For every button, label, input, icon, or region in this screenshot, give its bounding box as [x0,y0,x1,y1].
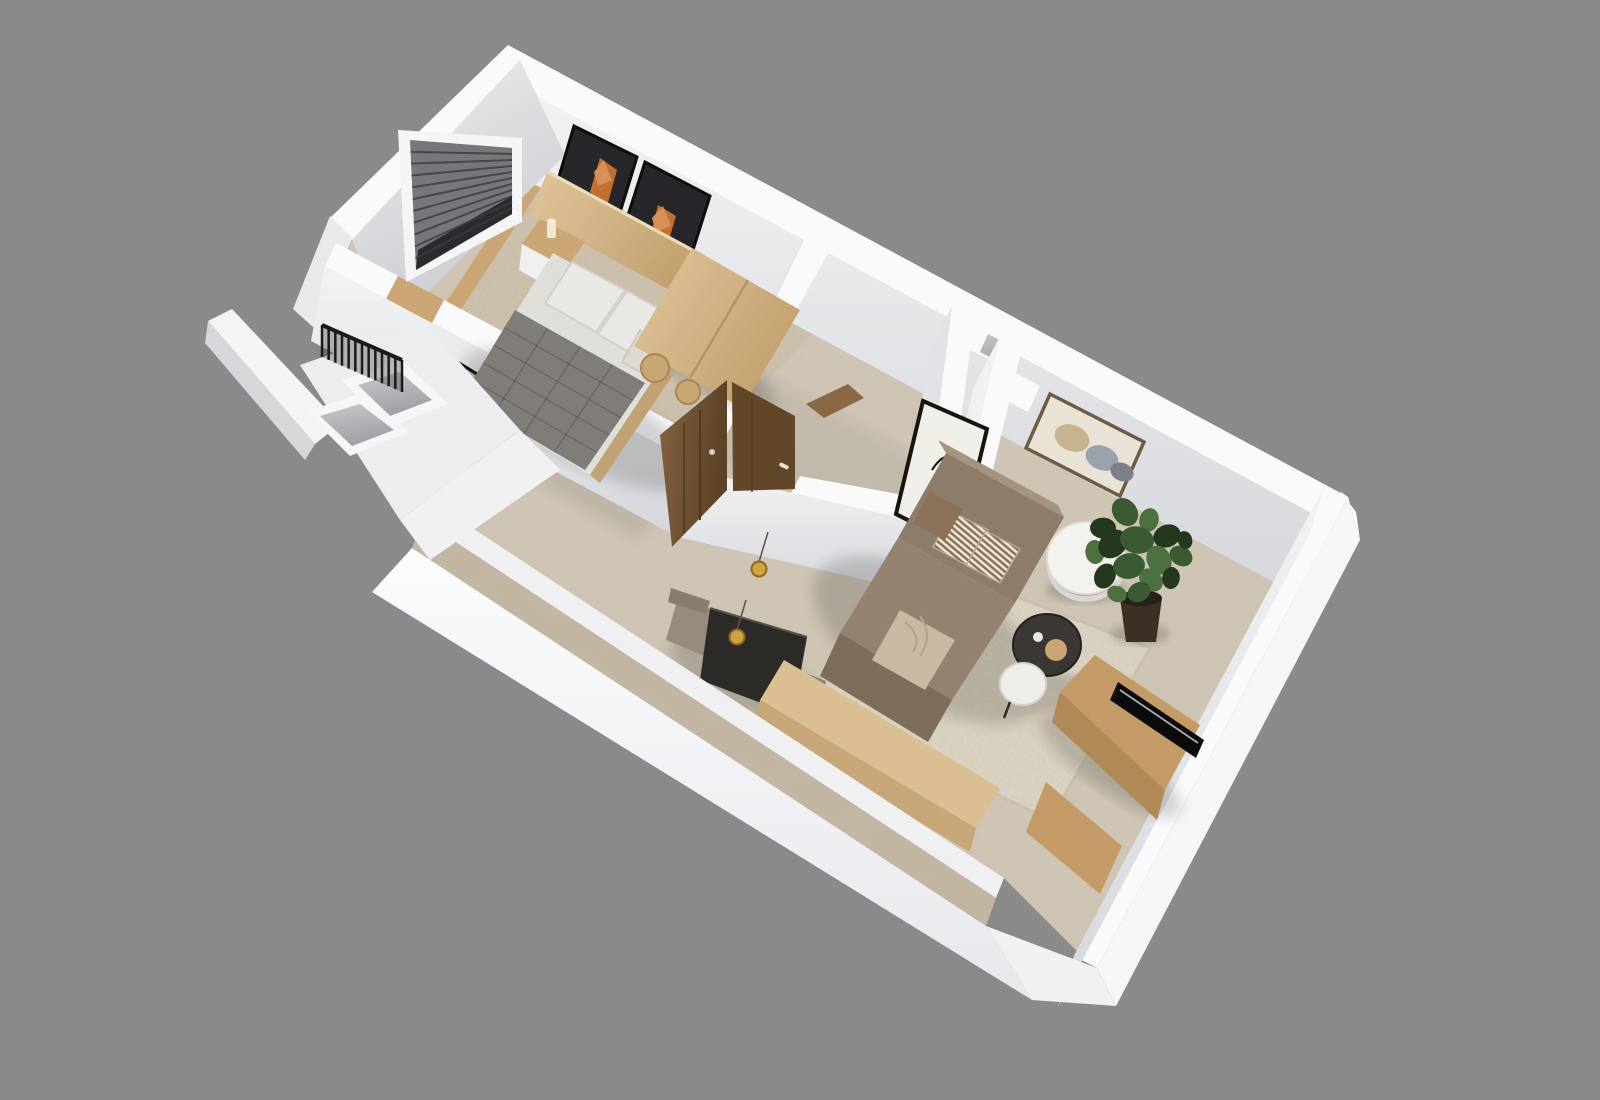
coffee-table-tray [1045,639,1067,661]
candle [547,222,556,238]
wood-stool-2 [676,380,700,404]
door-handle-1 [709,449,715,455]
nesting-table [1000,663,1046,705]
apartment-3d-scene [0,0,1600,1100]
pendant-lamp-2 [730,630,745,645]
coffee-cup [1033,632,1043,642]
candle-top [547,219,556,224]
wood-stool-1 [641,354,669,382]
floorplan-render [0,0,1600,1100]
pendant-lamp-1 [752,562,767,577]
